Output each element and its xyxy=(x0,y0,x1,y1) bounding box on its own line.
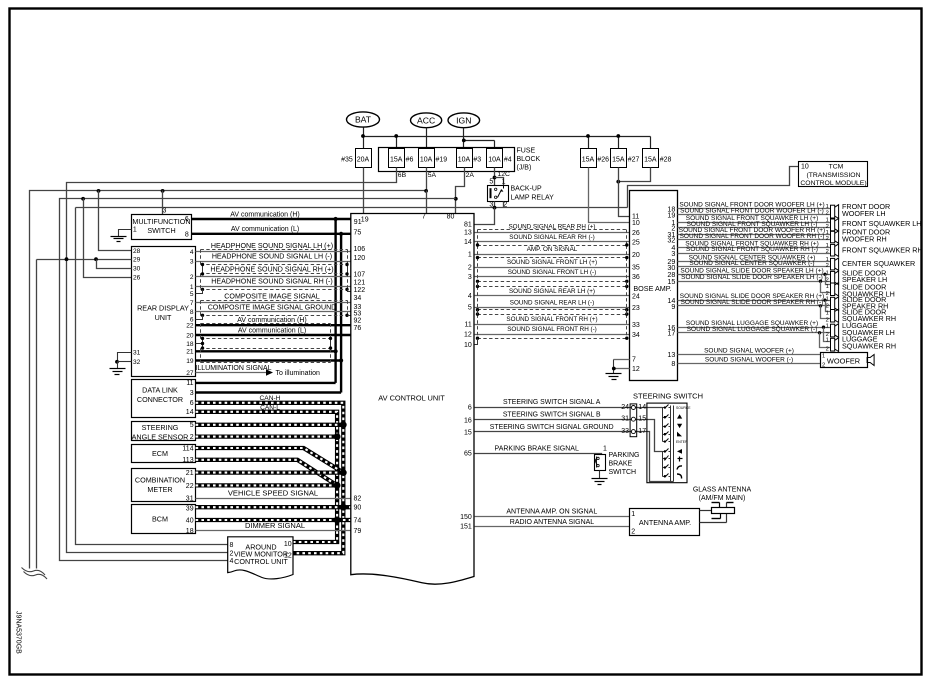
svg-text:REAR DISPLAY: REAR DISPLAY xyxy=(137,304,189,313)
svg-text:2: 2 xyxy=(826,236,829,242)
svg-text:J9NA5370GB: J9NA5370GB xyxy=(15,611,22,654)
svg-text:1: 1 xyxy=(826,218,829,224)
svg-text:24: 24 xyxy=(621,404,629,411)
svg-text:ANGLE SENSOR: ANGLE SENSOR xyxy=(132,432,189,441)
svg-text:17: 17 xyxy=(638,428,646,435)
svg-text:30: 30 xyxy=(133,265,141,272)
svg-text:1: 1 xyxy=(826,323,829,329)
svg-text:7: 7 xyxy=(422,214,426,221)
svg-text:2: 2 xyxy=(826,249,829,255)
svg-text:76: 76 xyxy=(354,325,362,332)
svg-text:2: 2 xyxy=(190,274,194,281)
svg-text:WOOFER: WOOFER xyxy=(827,356,860,365)
svg-text:22: 22 xyxy=(186,483,194,490)
svg-text:To illumination: To illumination xyxy=(276,370,320,377)
svg-text:113: 113 xyxy=(182,457,193,464)
svg-text:21: 21 xyxy=(186,470,194,477)
svg-text:80: 80 xyxy=(447,214,455,221)
svg-text:90: 90 xyxy=(354,504,362,511)
svg-text:#28: #28 xyxy=(660,156,672,163)
svg-text:SOUND SIGNAL FRONT LH (+): SOUND SIGNAL FRONT LH (+) xyxy=(507,259,597,266)
svg-text:3: 3 xyxy=(190,258,194,265)
svg-text:STEERING: STEERING xyxy=(142,423,179,432)
svg-text:5: 5 xyxy=(190,422,194,429)
svg-text:SOUND SIGNAL FRONT SQUAWKER RH: SOUND SIGNAL FRONT SQUAWKER RH (-) xyxy=(686,246,818,253)
svg-text:SOUND SIGNAL FRONT RH (+): SOUND SIGNAL FRONT RH (+) xyxy=(506,316,597,323)
svg-text:#26: #26 xyxy=(597,156,609,163)
svg-text:114: 114 xyxy=(182,445,193,452)
svg-text:25: 25 xyxy=(632,239,640,246)
svg-text:SOUND SIGNAL LUGGAGE SQUAWKER: SOUND SIGNAL LUGGAGE SQUAWKER (-) xyxy=(687,326,818,333)
svg-text:WOOFER RH: WOOFER RH xyxy=(842,235,887,244)
svg-text:15A: 15A xyxy=(644,156,657,163)
svg-text:SOUND SIGNAL FRONT RH (-): SOUND SIGNAL FRONT RH (-) xyxy=(507,326,597,333)
svg-text:34: 34 xyxy=(354,295,362,302)
svg-text:AV communication (L): AV communication (L) xyxy=(238,327,306,334)
svg-text:ANTENNA AMP.: ANTENNA AMP. xyxy=(639,518,691,527)
svg-text:SOUND SIGNAL REAR LH (-): SOUND SIGNAL REAR LH (-) xyxy=(510,300,594,307)
svg-text:2: 2 xyxy=(190,434,194,441)
svg-text:IGN: IGN xyxy=(456,115,471,125)
svg-text:CONNECTOR: CONNECTOR xyxy=(137,395,183,404)
svg-text:151: 151 xyxy=(460,524,472,531)
svg-text:SQUAWKER RH: SQUAWKER RH xyxy=(842,341,896,350)
svg-text:VEHICLE SPEED SIGNAL: VEHICLE SPEED SIGNAL xyxy=(228,488,318,497)
svg-text:1: 1 xyxy=(468,252,472,259)
svg-text:2: 2 xyxy=(826,210,829,216)
svg-text:1: 1 xyxy=(826,337,829,343)
svg-text:#4: #4 xyxy=(504,156,512,163)
svg-text:AV CONTROL UNIT: AV CONTROL UNIT xyxy=(378,394,445,403)
svg-text:CAN-L: CAN-L xyxy=(260,405,280,412)
svg-text:BACK-UP: BACK-UP xyxy=(511,186,542,193)
svg-text:19: 19 xyxy=(186,358,194,365)
svg-text:13: 13 xyxy=(464,230,472,237)
svg-text:26: 26 xyxy=(133,274,141,281)
svg-text:6: 6 xyxy=(468,405,472,412)
svg-text:16: 16 xyxy=(464,417,472,424)
svg-text:22: 22 xyxy=(186,323,194,330)
svg-text:150: 150 xyxy=(460,514,472,521)
svg-text:SOUND SIGNAL FRONT LH (-): SOUND SIGNAL FRONT LH (-) xyxy=(508,269,597,276)
svg-text:3: 3 xyxy=(468,274,472,281)
svg-text:SOUND SIGNAL WOOFER (+): SOUND SIGNAL WOOFER (+) xyxy=(704,347,794,354)
svg-text:SOURCE: SOURCE xyxy=(676,406,691,410)
svg-text:24: 24 xyxy=(632,294,640,301)
svg-text:STEERING SWITCH: STEERING SWITCH xyxy=(633,392,703,401)
svg-text:SOUND SIGNAL REAR RH (-): SOUND SIGNAL REAR RH (-) xyxy=(509,234,594,241)
svg-text:1: 1 xyxy=(826,204,829,210)
svg-text:107: 107 xyxy=(354,272,366,279)
svg-text:2: 2 xyxy=(826,346,829,352)
svg-text:92: 92 xyxy=(354,317,362,324)
svg-text:SOUND SIGNAL SLIDE DOOR SPEAKE: SOUND SIGNAL SLIDE DOOR SPEAKER LH (-) xyxy=(681,274,823,281)
svg-text:17: 17 xyxy=(667,329,675,338)
svg-text:3: 3 xyxy=(190,390,194,397)
svg-text:4: 4 xyxy=(230,558,234,565)
svg-text:122: 122 xyxy=(354,287,366,294)
svg-text:13: 13 xyxy=(667,350,675,359)
svg-text:STEERING SWITCH SIGNAL GROUND: STEERING SWITCH SIGNAL GROUND xyxy=(490,424,614,431)
svg-text:STEERING SWITCH SIGNAL A: STEERING SWITCH SIGNAL A xyxy=(503,399,601,406)
svg-text:FUSE: FUSE xyxy=(517,148,536,155)
svg-text:33: 33 xyxy=(632,322,640,329)
svg-text:MULTIFUNCTION: MULTIFUNCTION xyxy=(132,217,190,226)
svg-text:20A: 20A xyxy=(357,156,370,163)
svg-text:15: 15 xyxy=(464,430,472,437)
svg-text:12: 12 xyxy=(632,366,640,373)
svg-text:COMBINATION: COMBINATION xyxy=(135,475,185,484)
svg-text:GLASS ANTENNA: GLASS ANTENNA xyxy=(693,487,752,494)
svg-text:DIMMER SIGNAL: DIMMER SIGNAL xyxy=(245,521,305,530)
svg-text:1: 1 xyxy=(826,284,829,290)
svg-text:8: 8 xyxy=(230,542,234,549)
svg-text:36: 36 xyxy=(632,274,640,281)
svg-text:2: 2 xyxy=(631,529,635,536)
svg-text:CONTROL MODULE): CONTROL MODULE) xyxy=(800,180,866,187)
svg-text:14: 14 xyxy=(638,404,646,411)
svg-text:#19: #19 xyxy=(436,156,448,163)
svg-text:20: 20 xyxy=(186,332,194,339)
svg-text:SOUND SIGNAL WOOFER (-): SOUND SIGNAL WOOFER (-) xyxy=(705,356,793,363)
svg-text:12: 12 xyxy=(464,331,472,338)
svg-text:2: 2 xyxy=(826,263,829,269)
svg-text:HEADPHONE SOUND SIGNAL LH (-): HEADPHONE SOUND SIGNAL LH (-) xyxy=(212,253,332,261)
svg-text:1: 1 xyxy=(133,227,137,234)
svg-text:14: 14 xyxy=(186,409,194,416)
svg-text:74: 74 xyxy=(354,517,362,524)
svg-text:120: 120 xyxy=(354,255,366,262)
svg-text:31: 31 xyxy=(621,416,629,423)
svg-text:(TRANSMISSION: (TRANSMISSION xyxy=(806,172,860,179)
svg-text:ACC: ACC xyxy=(417,115,435,125)
svg-text:23: 23 xyxy=(632,305,640,312)
svg-text:STEERING SWITCH SIGNAL B: STEERING SWITCH SIGNAL B xyxy=(503,412,601,419)
svg-text:FRONT SQUAWKER RH: FRONT SQUAWKER RH xyxy=(842,245,923,254)
svg-text:33: 33 xyxy=(621,428,629,435)
svg-text:UNIT: UNIT xyxy=(155,313,172,322)
svg-text:32: 32 xyxy=(133,359,141,366)
svg-text:106: 106 xyxy=(354,246,366,253)
svg-text:121: 121 xyxy=(354,279,366,286)
svg-text:2: 2 xyxy=(826,277,829,283)
svg-text:TCM: TCM xyxy=(829,164,844,171)
svg-text:#3: #3 xyxy=(473,156,481,163)
svg-text:4: 4 xyxy=(190,249,194,256)
svg-text:20: 20 xyxy=(632,252,640,259)
svg-text:CONTROL UNIT: CONTROL UNIT xyxy=(234,557,288,566)
svg-text:1: 1 xyxy=(190,284,194,291)
svg-text:BRAKE: BRAKE xyxy=(609,461,633,468)
svg-text:ANTENNA AMP. ON SIGNAL: ANTENNA AMP. ON SIGNAL xyxy=(506,509,597,516)
svg-text:11: 11 xyxy=(186,380,193,387)
svg-text:WOOFER LH: WOOFER LH xyxy=(842,209,886,218)
svg-text:4: 4 xyxy=(468,293,472,300)
svg-text:DATA LINK: DATA LINK xyxy=(142,386,178,395)
svg-text:COMPOSITE IMAGE SIGNAL GROUND: COMPOSITE IMAGE SIGNAL GROUND xyxy=(208,303,337,311)
svg-text:1: 1 xyxy=(826,270,829,276)
svg-text:15: 15 xyxy=(667,277,675,286)
svg-text:5: 5 xyxy=(489,179,493,186)
svg-text:9: 9 xyxy=(671,302,675,311)
svg-text:2: 2 xyxy=(230,550,234,557)
svg-text:AV communication (H): AV communication (H) xyxy=(237,317,307,324)
svg-text:6B: 6B xyxy=(398,172,407,179)
svg-text:BAT: BAT xyxy=(355,115,372,125)
svg-text:PARKING: PARKING xyxy=(609,452,640,459)
svg-text:2: 2 xyxy=(822,363,825,369)
svg-text:CAN-H: CAN-H xyxy=(260,395,281,402)
svg-text:SOUND SIGNAL FRONT DOOR WOOFER: SOUND SIGNAL FRONT DOOR WOOFER LH (-) xyxy=(680,207,824,214)
svg-text:1: 1 xyxy=(822,354,825,360)
svg-text:2: 2 xyxy=(468,264,472,271)
svg-text:34: 34 xyxy=(632,332,640,339)
svg-text:ILLUMINATION SIGNAL: ILLUMINATION SIGNAL xyxy=(195,365,271,372)
svg-text:HEADPHONE SOUND SIGNAL RH (-): HEADPHONE SOUND SIGNAL RH (-) xyxy=(211,278,333,286)
svg-text:AV communication (H): AV communication (H) xyxy=(230,211,300,218)
svg-text:AMP. ON SIGNAL: AMP. ON SIGNAL xyxy=(527,246,578,253)
svg-text:7: 7 xyxy=(632,357,636,364)
svg-text:10: 10 xyxy=(284,541,292,548)
svg-text:2A: 2A xyxy=(466,172,475,179)
svg-text:79: 79 xyxy=(354,528,362,535)
svg-text:82: 82 xyxy=(354,495,362,502)
svg-text:SOUND SIGNAL SLIDE DOOR SPEAKE: SOUND SIGNAL SLIDE DOOR SPEAKER RH (-) xyxy=(681,299,824,306)
svg-text:18: 18 xyxy=(186,528,194,535)
svg-text:15A: 15A xyxy=(612,156,625,163)
svg-text:AV communication (L): AV communication (L) xyxy=(231,226,299,233)
svg-text:5: 5 xyxy=(468,305,472,312)
svg-text:1: 1 xyxy=(502,179,506,186)
svg-text:14: 14 xyxy=(464,239,472,246)
svg-text:ENTER: ENTER xyxy=(676,440,688,444)
svg-text:2: 2 xyxy=(826,303,829,309)
svg-text:8: 8 xyxy=(190,309,194,316)
svg-text:10: 10 xyxy=(801,164,809,171)
svg-text:BOSE AMP.: BOSE AMP. xyxy=(633,284,671,293)
svg-text:27: 27 xyxy=(186,370,194,377)
svg-text:1: 1 xyxy=(603,446,607,453)
svg-text:BLOCK: BLOCK xyxy=(517,156,541,163)
svg-text:35: 35 xyxy=(632,265,640,272)
svg-text:SWITCH: SWITCH xyxy=(609,469,637,476)
svg-text:15A: 15A xyxy=(582,156,595,163)
svg-text:CENTER SQUAWKER: CENTER SQUAWKER xyxy=(842,259,915,268)
svg-text:6: 6 xyxy=(190,400,194,407)
svg-text:7: 7 xyxy=(190,300,194,307)
svg-text:PARKING BRAKE SIGNAL: PARKING BRAKE SIGNAL xyxy=(495,445,579,452)
svg-text:28: 28 xyxy=(133,248,141,255)
svg-text:18: 18 xyxy=(186,341,194,348)
svg-text:12: 12 xyxy=(284,552,292,559)
svg-text:#6: #6 xyxy=(406,156,414,163)
svg-text:39: 39 xyxy=(186,505,194,512)
svg-text:31: 31 xyxy=(133,350,141,357)
svg-text:11: 11 xyxy=(465,322,472,329)
svg-text:3: 3 xyxy=(163,208,167,215)
svg-text:65: 65 xyxy=(464,450,472,457)
svg-text:15: 15 xyxy=(638,416,646,423)
svg-text:1: 1 xyxy=(826,311,829,317)
svg-text:#27: #27 xyxy=(628,156,640,163)
svg-text:SOUND SIGNAL REAR LH (+): SOUND SIGNAL REAR LH (+) xyxy=(509,288,595,295)
svg-text:SOUND SIGNAL FRONT DOOR WOOFER: SOUND SIGNAL FRONT DOOR WOOFER RH (-) xyxy=(680,233,825,240)
svg-text:ECM: ECM xyxy=(152,449,168,458)
svg-text:METER: METER xyxy=(147,485,172,494)
svg-text:RADIO ANTENNA SIGNAL: RADIO ANTENNA SIGNAL xyxy=(510,519,595,526)
svg-text:SOUND SIGNAL CENTER SQUAWKER (: SOUND SIGNAL CENTER SQUAWKER (-) xyxy=(689,260,814,267)
svg-text:(J/B): (J/B) xyxy=(517,165,532,172)
svg-text:10A: 10A xyxy=(420,156,433,163)
svg-text:19: 19 xyxy=(361,216,369,223)
svg-text:10: 10 xyxy=(632,220,640,227)
svg-text:BCM: BCM xyxy=(152,515,168,524)
svg-text:8: 8 xyxy=(185,231,189,238)
svg-text:1: 1 xyxy=(826,296,829,302)
svg-text:COMPOSITE IMAGE SIGNAL: COMPOSITE IMAGE SIGNAL xyxy=(224,293,319,301)
svg-text:10A: 10A xyxy=(488,156,501,163)
svg-text:29: 29 xyxy=(133,257,141,264)
svg-text:15A: 15A xyxy=(390,156,403,163)
svg-text:31: 31 xyxy=(186,495,194,502)
svg-text:LAMP RELAY: LAMP RELAY xyxy=(511,195,555,202)
svg-text:HEADPHONE SOUND SIGNAL RH (+): HEADPHONE SOUND SIGNAL RH (+) xyxy=(210,265,333,273)
svg-text:6: 6 xyxy=(185,216,189,223)
svg-text:(AM/FM MAIN): (AM/FM MAIN) xyxy=(699,495,746,502)
svg-text:26: 26 xyxy=(632,230,640,237)
svg-text:10: 10 xyxy=(464,342,472,349)
svg-text:5A: 5A xyxy=(428,172,437,179)
svg-text:75: 75 xyxy=(354,229,362,236)
svg-text:8: 8 xyxy=(671,359,675,368)
svg-text:10A: 10A xyxy=(458,156,471,163)
svg-text:81: 81 xyxy=(464,222,472,229)
svg-text:SWITCH: SWITCH xyxy=(147,226,175,235)
svg-text:1: 1 xyxy=(631,511,635,518)
svg-text:40: 40 xyxy=(186,518,194,525)
svg-text:21: 21 xyxy=(186,349,194,356)
svg-text:5: 5 xyxy=(190,291,194,298)
svg-text:#35: #35 xyxy=(341,156,353,163)
